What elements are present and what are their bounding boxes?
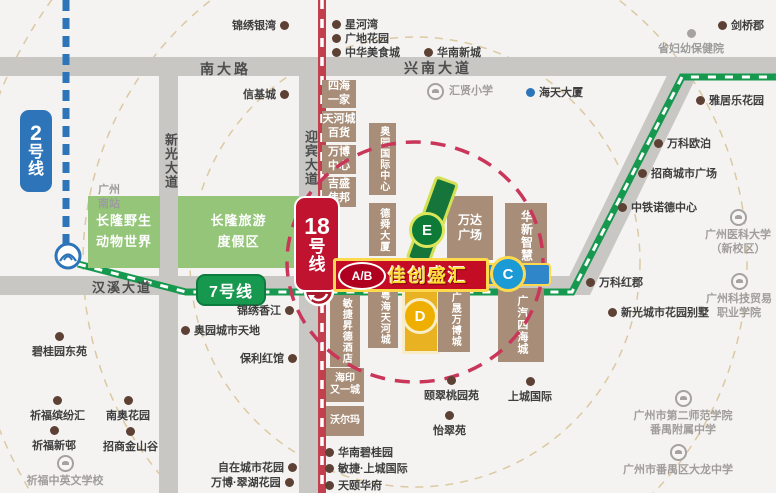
- poi-dot: [288, 354, 297, 363]
- building-sihaiyijia: 四海 一家: [322, 80, 356, 108]
- school-icon: [57, 455, 74, 472]
- zone-c-marker: C: [490, 256, 526, 292]
- poi-dot: [332, 48, 341, 57]
- poi-zhaoshangjinshangu: 招商金山谷: [103, 427, 158, 454]
- poi-yicuiyuan: 怡翠苑: [433, 411, 466, 438]
- poi-dot: [285, 478, 294, 487]
- poi-dot: [526, 377, 535, 386]
- poi-dot: [55, 332, 64, 341]
- poi-zhaoshangchengshiguangchang: 招商城市广场: [638, 165, 717, 181]
- poi-dot: [654, 139, 663, 148]
- building-wanda-plaza: 万达 广场: [447, 196, 493, 260]
- poi-dot: [447, 376, 456, 385]
- poi-tianyihuafu: 天颐华府: [325, 477, 382, 493]
- building-minjie-hotel: 敏捷昇德酒店: [330, 295, 360, 367]
- poi-dot: [325, 464, 334, 473]
- poi-dot: [608, 308, 617, 317]
- school-huixian-primary: 汇贤小学: [427, 83, 493, 100]
- road-label-nandalu: 南大路: [200, 59, 251, 79]
- poi-dot: [526, 88, 535, 97]
- zone-e-marker: E: [409, 212, 445, 248]
- poi-dot: [332, 20, 341, 29]
- building-guangsheng-wanbo: 广晟万博城: [438, 286, 470, 352]
- poi-jianqiaojun: 剑桥郡: [718, 17, 764, 33]
- poi-dot: [288, 463, 297, 472]
- poi-biguiyuandongyuan: 碧桂园东苑: [32, 332, 87, 359]
- poi-haitiandasha: 海天大厦: [526, 84, 583, 100]
- poi-dot: [325, 448, 334, 457]
- poi-dot: [618, 203, 627, 212]
- zone-ab-marker: A/B: [338, 262, 386, 290]
- poi-dot: [280, 90, 289, 99]
- poi-dot: [687, 29, 696, 38]
- building-aoyuan-intl: 奥园国际中心: [369, 123, 396, 195]
- poi-dot: [181, 326, 190, 335]
- poi-qifubinfenhui: 祈福缤纷汇: [30, 396, 85, 423]
- zone-d-marker: D: [402, 298, 438, 334]
- poi-dot: [50, 426, 59, 435]
- school-icon: [730, 209, 747, 226]
- park-safari-label: 长隆野生 动物世界: [96, 211, 152, 253]
- poi-dot: [280, 21, 289, 30]
- poi-nanaohuayuan: 南奥花园: [106, 396, 150, 423]
- poi-dot: [586, 278, 595, 287]
- poi-xinguangchengshihuayuan: 新光城市花园别墅: [608, 304, 709, 320]
- south-station-label: 广州 南站: [98, 183, 120, 212]
- project-banner: A/B 佳创盛汇: [333, 258, 489, 292]
- poi-dot: [325, 481, 334, 490]
- poi-wankehongjun: 万科红郡: [586, 274, 643, 290]
- school-icon: [427, 83, 444, 100]
- school-icon: [731, 273, 748, 290]
- school-gz-medical-univ: 广州医科大学 （新校区）: [700, 209, 776, 257]
- school-gz-tech-trade-college: 广州科技贸易 职业学院: [702, 273, 776, 321]
- poi-yajulehuayuan: 雅居乐花园: [696, 92, 764, 108]
- poi-dot: [285, 306, 294, 315]
- poi-dot: [124, 396, 133, 405]
- poi-huananbiguiyuan: 华南碧桂园: [325, 444, 393, 460]
- school-icon: [675, 390, 692, 407]
- building-gac-sihai: 广汽四海城: [498, 288, 544, 362]
- poi-jinxiuxiangjiang: 锦绣香江: [237, 302, 294, 318]
- building-walmart: 沃尔玛: [326, 406, 364, 436]
- poi-zizaichengshihuayuan: 自在城市花园: [218, 459, 297, 475]
- poi-zhonghuameishicheng: 中华美食城: [332, 44, 400, 60]
- poi-dot: [53, 396, 62, 405]
- poi-jinxiuyinwan: 锦绣银湾: [232, 17, 289, 33]
- poi-dot: [445, 411, 454, 420]
- poi-shangchengguoji: 上城国际: [508, 377, 552, 404]
- poi-yicuitaoyuanyuan: 颐翠桃园苑: [424, 376, 479, 403]
- poi-dot: [696, 96, 705, 105]
- poi-aoyuanchengshitiandi: 奥园城市天地: [181, 322, 260, 338]
- building-teemall: 天河城 百货: [322, 111, 356, 142]
- poi-dot: [332, 34, 341, 43]
- road-label-xingnan: 兴南大道: [404, 58, 472, 78]
- poi-qifuxincun: 祈福新邨: [32, 426, 76, 453]
- poi-wankeoubo: 万科欧泊: [654, 135, 711, 151]
- building-yuehai-teemcity: 粤海天河城: [368, 286, 398, 348]
- poi-minjieshangchengguoji: 敏捷·上城国际: [325, 460, 408, 476]
- school-icon: [670, 444, 687, 461]
- park-resort: 长隆旅游 度假区: [178, 196, 299, 268]
- road-label-hanxi: 汉溪大道: [92, 277, 152, 296]
- location-map: 长隆野生 动物世界 长隆旅游 度假区 四海 一家 天河城 百货 万博 中心 吉盛…: [0, 0, 776, 493]
- poi-xinjicheng: 信基城: [243, 86, 289, 102]
- poi-zhongtienuodezhongxin: 中铁诺德中心: [618, 199, 697, 215]
- project-logo: 佳创盛汇: [388, 262, 468, 288]
- poi-wanbocuihuhuayuan: 万博·翠湖花园: [211, 474, 294, 490]
- poi-dot: [424, 48, 433, 57]
- building-haiyin-mall: 海印 又一城: [326, 368, 364, 402]
- park-resort-label: 长隆旅游 度假区: [210, 211, 266, 253]
- poi-shengfuyoubaojianyuan: 省妇幼保健院: [658, 29, 724, 56]
- school-dalong-middle: 广州市番禺区大龙中学: [618, 444, 738, 477]
- road-xinguang-avenue: [159, 57, 178, 493]
- school-qifu-bilingual: 祈福中英文学校: [20, 455, 110, 488]
- road-label-yingbin: 迎宾大道: [301, 130, 320, 186]
- line2-badge: 2 号 线: [20, 110, 52, 192]
- building-deshun-tower: 德舜大厦: [369, 203, 396, 256]
- poi-baolihongguan: 保利红馆: [240, 350, 297, 366]
- poi-huananxincheng: 华南新城: [424, 44, 481, 60]
- building-wanbo-center: 万博 中心: [322, 145, 356, 174]
- road-label-xinguang: 新光大道: [161, 133, 180, 189]
- poi-dot: [638, 169, 647, 178]
- school-second-normal-affiliated: 广州市第二师范学院 番禺附属中学: [628, 390, 738, 438]
- poi-dot: [126, 427, 135, 436]
